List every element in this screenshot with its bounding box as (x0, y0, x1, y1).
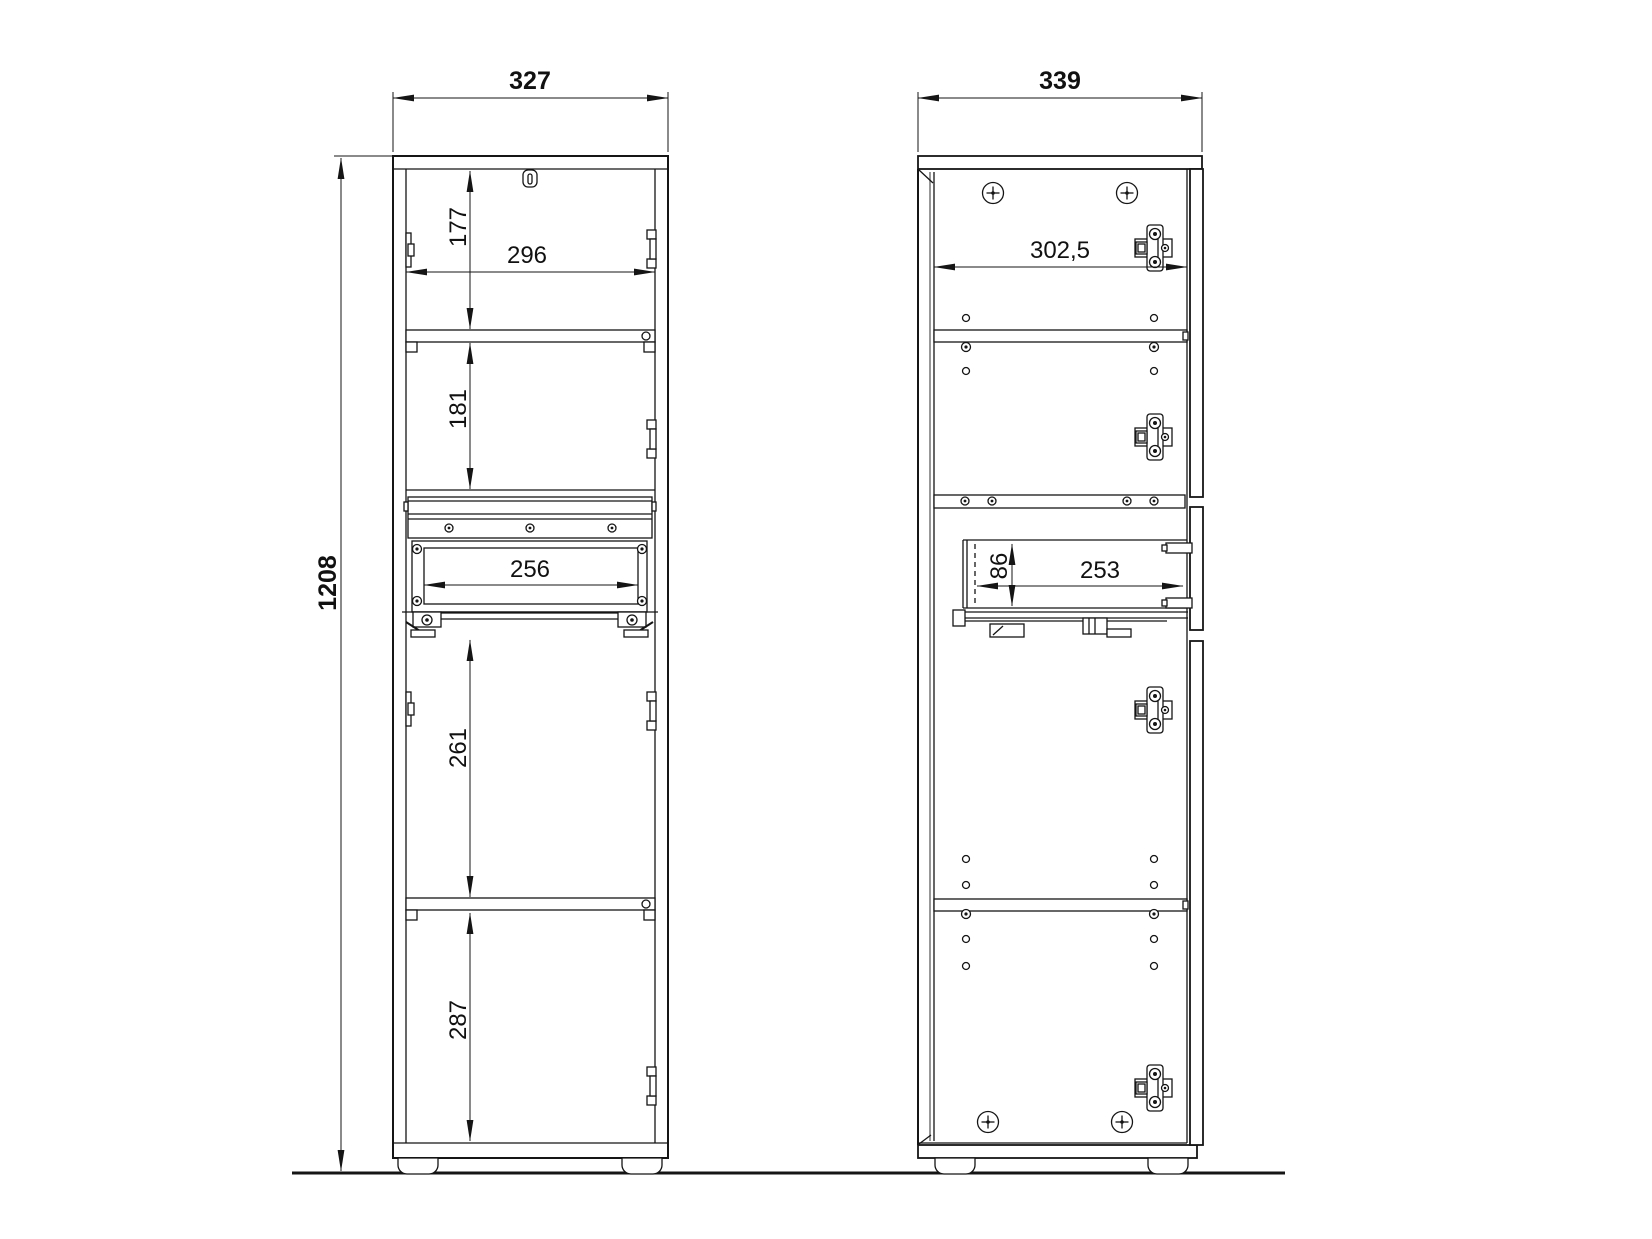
rail-screw-icon (961, 497, 969, 505)
shelf-pin-hole (1151, 882, 1158, 889)
shelf-pin-hole (963, 368, 970, 375)
plinth-side (918, 1145, 1197, 1158)
dim-label-bottom-section: 287 (445, 1000, 472, 1040)
drawer-slides-front-view (402, 612, 658, 637)
lower-shelf-side (934, 856, 1188, 970)
screw-icon (1112, 1112, 1133, 1133)
shelf-pin-hole (963, 963, 970, 970)
front-left-foot (398, 1158, 438, 1174)
drawer-front-rear-view (404, 497, 656, 538)
door-catch-icon (406, 692, 414, 726)
drawer-cam-icon (413, 597, 422, 606)
dim-label-drawer-depth: 253 (1080, 557, 1120, 584)
hinge-icon (1135, 687, 1172, 733)
technical-drawing-page: 327 1208 177 296 181 256 261 287 339 302… (0, 0, 1652, 1239)
dim-label-overall-depth: 339 (1039, 67, 1081, 95)
hinge-plate-icon (647, 420, 656, 458)
cabinet-body-outline (393, 156, 668, 1158)
upper-shelf (406, 330, 655, 352)
dim-label-inner-depth: 302,5 (1030, 237, 1090, 264)
hinge-plate-icon (647, 692, 656, 730)
lower-shelf (406, 898, 655, 920)
dim-label-overall-height: 1208 (314, 555, 342, 611)
side-front-foot (1148, 1158, 1188, 1174)
screw-icon (983, 183, 1004, 204)
shelf-pin-hole (963, 936, 970, 943)
cam-screw-icon (962, 343, 971, 352)
screw-icon (608, 524, 616, 532)
back-panel-corner-mark (919, 170, 933, 183)
drawer-slide-side-view (953, 610, 1188, 637)
side-back-foot (935, 1158, 975, 1174)
shelf-pin-hole (963, 882, 970, 889)
hinge-plate-icon (647, 230, 656, 268)
hinge-plate-icon (647, 1067, 656, 1105)
front-right-foot (622, 1158, 662, 1174)
dim-label-overall-width: 327 (509, 67, 551, 95)
dim-label-inner-width: 296 (507, 242, 547, 269)
dim-label-lower-section: 261 (445, 728, 472, 768)
upper-shelf-side (934, 315, 1188, 375)
cabinet-side-view (918, 156, 1203, 1174)
drawer-front-edge (1190, 507, 1203, 630)
cabinet-technical-drawing: 327 1208 177 296 181 256 261 287 339 302… (0, 0, 1652, 1239)
dim-label-top-section: 177 (445, 207, 472, 247)
cam-screw-icon (1150, 910, 1159, 919)
screw-icon (1117, 183, 1138, 204)
shelf-pin-hole (1151, 936, 1158, 943)
top-panel-side (918, 156, 1202, 169)
shelf-pin-hole (1151, 368, 1158, 375)
drawer-cam-icon (638, 545, 647, 554)
cabinet-front-view (393, 156, 668, 1174)
dim-label-drawer-height: 86 (986, 553, 1013, 580)
drawer-cam-icon (638, 597, 647, 606)
door-catch-icon (406, 233, 414, 267)
screw-icon (526, 524, 534, 532)
hinge-icon (1135, 1065, 1172, 1111)
hinge-icon (1135, 414, 1172, 460)
shelf-pin-hole (1151, 315, 1158, 322)
screw-icon (445, 524, 453, 532)
rail-screw-icon (1150, 497, 1158, 505)
drawer-cam-icon (413, 545, 422, 554)
upper-door-edge (1190, 169, 1203, 497)
shelf-pin-hole (963, 315, 970, 322)
cam-screw-icon (962, 910, 971, 919)
rail-screw-icon (988, 497, 996, 505)
lower-door-edge (1190, 641, 1203, 1145)
rail-screw-icon (1123, 497, 1131, 505)
fixed-rail-side (934, 495, 1185, 508)
keyhole-hanger-icon (523, 170, 537, 187)
hinge-icon (1135, 225, 1172, 271)
cam-screw-icon (1150, 343, 1159, 352)
dim-label-middle-section: 181 (445, 389, 472, 429)
screw-icon (978, 1112, 999, 1133)
shelf-pin-hole (963, 856, 970, 863)
shelf-pin-hole (1151, 856, 1158, 863)
shelf-pin-hole (1151, 963, 1158, 970)
dim-label-drawer-width: 256 (510, 556, 550, 583)
